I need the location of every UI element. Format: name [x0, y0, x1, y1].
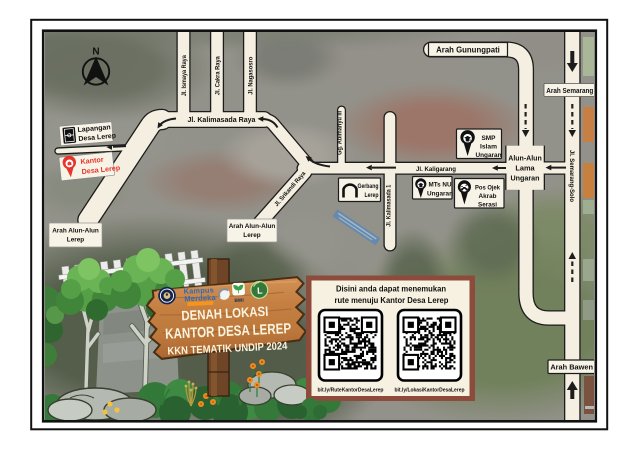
svg-text:bit.ly/LokasiKantorDesaLerep: bit.ly/LokasiKantorDesaLerep: [395, 388, 466, 394]
svg-text:Lerep: Lerep: [243, 232, 260, 239]
svg-text:MTs NU: MTs NU: [429, 182, 452, 189]
svg-text:L: L: [257, 286, 263, 296]
svg-text:Jl. Semarang-Solo: Jl. Semarang-Solo: [568, 150, 575, 202]
svg-text:Jl. Nagasosro: Jl. Nagasosro: [247, 57, 254, 95]
svg-text:Gg. Abimanyu III: Gg. Abimanyu III: [337, 111, 344, 155]
svg-text:Arah Gunungpati: Arah Gunungpati: [436, 45, 500, 54]
svg-text:Jl. Kalimasada 1: Jl. Kalimasada 1: [386, 184, 393, 226]
svg-text:Islam: Islam: [480, 144, 497, 151]
svg-text:Akrab: Akrab: [479, 193, 497, 200]
svg-text:Lerep: Lerep: [365, 192, 379, 199]
svg-text:bit.ly/RuteKantorDesaLerep: bit.ly/RuteKantorDesaLerep: [318, 388, 385, 394]
svg-text:Jl. Srikandi Raya: Jl. Srikandi Raya: [273, 170, 307, 208]
svg-text:Arah Semarang: Arah Semarang: [546, 86, 593, 95]
svg-text:Disini anda dapat menemukan: Disini anda dapat menemukan: [336, 285, 446, 294]
svg-text:Jl. Kalimasada Raya: Jl. Kalimasada Raya: [188, 117, 256, 124]
svg-text:Serasi: Serasi: [478, 202, 497, 209]
svg-text:Jl. Kaligarang: Jl. Kaligarang: [416, 166, 456, 173]
svg-text:rute menuju Kantor Desa Lerep: rute menuju Kantor Desa Lerep: [335, 296, 449, 305]
svg-text:Ungaran: Ungaran: [511, 174, 540, 183]
svg-text:Lama: Lama: [515, 164, 535, 173]
svg-text:Alun-Alun: Alun-Alun: [508, 154, 542, 163]
svg-text:Ungaran: Ungaran: [427, 191, 453, 198]
svg-text:Ungaran: Ungaran: [476, 152, 502, 159]
svg-text:Arah Alun-Alun: Arah Alun-Alun: [229, 223, 276, 230]
svg-text:Gerbang: Gerbang: [358, 183, 379, 190]
svg-text:Jl. Cakra Raya: Jl. Cakra Raya: [214, 56, 221, 95]
svg-text:Lerep: Lerep: [67, 237, 84, 244]
svg-text:Pos Ojek: Pos Ojek: [475, 185, 500, 192]
svg-text:BWI: BWI: [234, 298, 244, 304]
svg-text:Arah Alun-Alun: Arah Alun-Alun: [52, 228, 99, 235]
svg-text:Arah Bawen: Arah Bawen: [550, 363, 593, 372]
svg-text:N: N: [92, 47, 99, 58]
svg-text:Jl. Ismaya Raya: Jl. Ismaya Raya: [181, 55, 188, 96]
svg-text:SMP: SMP: [482, 135, 497, 142]
